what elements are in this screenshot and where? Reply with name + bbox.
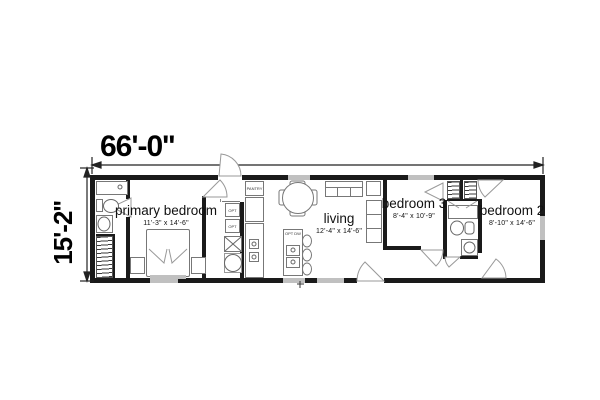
window-living-bottom: [317, 278, 344, 283]
back-door-arc: [219, 154, 241, 176]
bedroom2-size: 8'-10" x 14'-6": [472, 220, 552, 228]
wall-bath2-bottom: [460, 256, 478, 259]
kitchen-counter: [245, 223, 264, 278]
pantry-label: PANTRY: [247, 186, 263, 191]
window-dining-top: [288, 175, 310, 180]
living-name: living: [299, 212, 379, 226]
fridge: [245, 197, 264, 222]
room-label-bedroom3: bedroom 3 8'-4" x 10'-9": [374, 197, 454, 221]
toilet-tank-primary: [96, 199, 103, 212]
room-label-bedroom2: bedroom 2 8'-10" x 14'-6": [472, 204, 552, 228]
living-size: 12'-4" x 14'-6": [299, 228, 379, 236]
washer-box: [224, 236, 242, 252]
opt-appliance-box-1: OPT: [225, 203, 240, 217]
sofa-back-line: [326, 187, 362, 188]
island-sink-1: [286, 245, 300, 256]
opt-appliance-label-1: OPT: [228, 208, 236, 213]
shower-hall-bath: [461, 239, 478, 256]
sofa: [325, 181, 363, 197]
floor-plan: OPT OPT PANTRY OPT DW: [0, 0, 600, 400]
wall-closet1-side: [113, 234, 115, 278]
room-label-primary-bedroom: primary bedroom 11'-3" x 14'-6": [110, 204, 222, 228]
bedroom2-name: bedroom 2: [472, 204, 552, 218]
end-table: [366, 181, 381, 196]
room-label-living: living 12'-4" x 14'-6": [299, 212, 379, 236]
primary-bedroom-name: primary bedroom: [110, 204, 222, 218]
nightstand-right: [191, 257, 206, 274]
vanity-primary-bath: [96, 181, 128, 195]
back-door-opening: [218, 175, 242, 180]
island-sink-2: [286, 257, 300, 268]
wall-closet-divider: [460, 180, 463, 199]
utility-counter-edge: [222, 201, 240, 202]
cooktop-burner-1: [249, 239, 259, 249]
closet-bedroom2-hatch: [464, 181, 477, 199]
front-door-opening: [357, 278, 384, 283]
pantry-box: PANTRY: [245, 181, 264, 196]
bed-primary: [146, 229, 190, 277]
wall-bedroom3-bottom: [387, 246, 421, 250]
nightstand-left: [130, 257, 145, 274]
sofa-divider-2: [350, 187, 351, 196]
cooktop-burner-2: [249, 252, 259, 262]
opt-appliance-label-2: OPT: [228, 224, 236, 229]
closet-primary-hatch: [96, 236, 113, 278]
width-dimension-label: 66'-0'': [100, 130, 174, 164]
height-dimension-label: 15'-2'': [48, 188, 76, 278]
primary-bedroom-size: 11'-3" x 14'-6": [110, 220, 222, 228]
bedroom3-name: bedroom 3: [374, 197, 454, 211]
sofa-divider-1: [337, 187, 338, 196]
window-bedroom3-top: [408, 175, 434, 180]
headboard-primary: [150, 275, 186, 279]
opt-appliance-box-2: OPT: [225, 219, 240, 233]
window-kitchen-bottom: [283, 278, 305, 283]
pantry-shelf-dashed: [220, 180, 221, 202]
dryer-box: [224, 253, 242, 273]
bedroom3-size: 8'-4" x 10'-9": [374, 213, 454, 221]
